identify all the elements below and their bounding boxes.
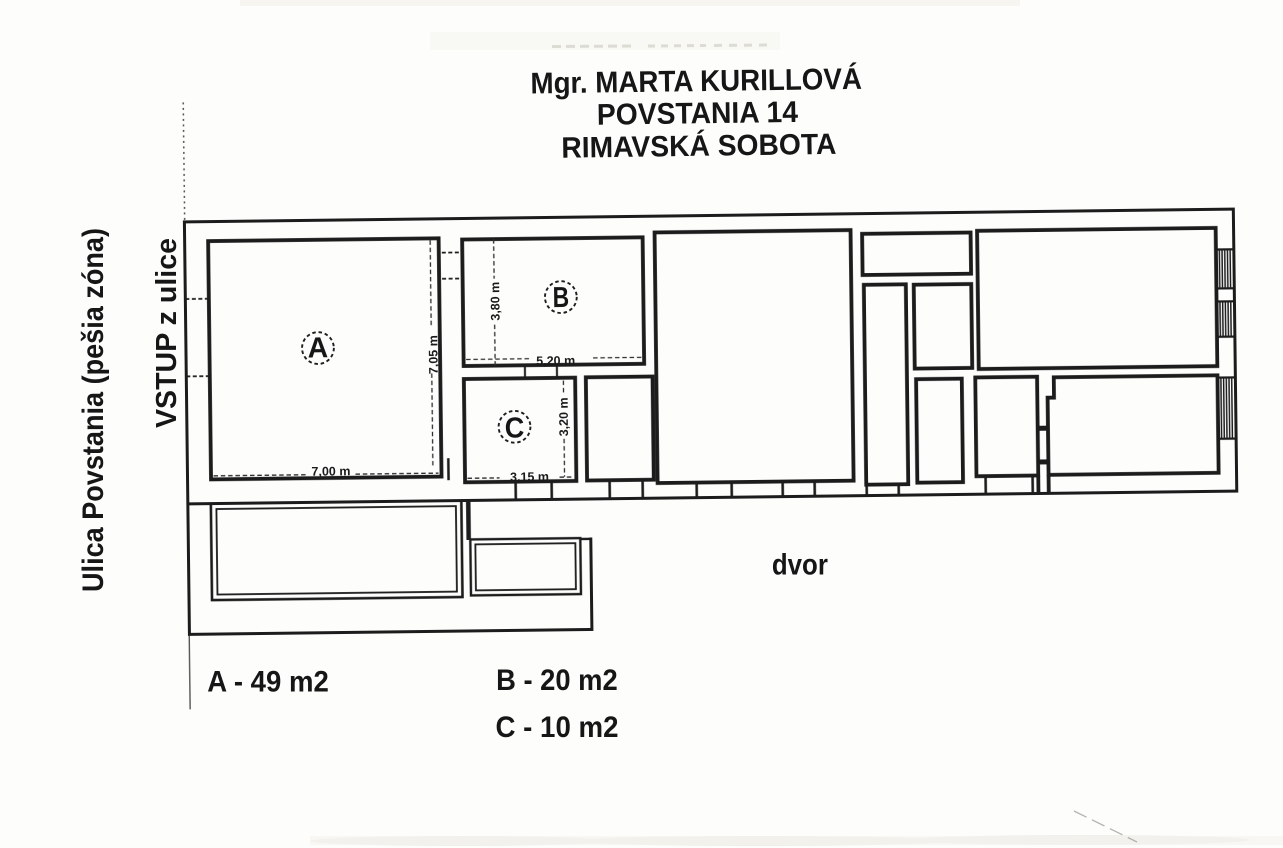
svg-text:Mgr. MARTA KURILLOVÁ: Mgr. MARTA KURILLOVÁ xyxy=(530,62,862,101)
svg-text:7,05 m: 7,05 m xyxy=(426,335,440,374)
svg-text:3,15 m: 3,15 m xyxy=(510,470,549,484)
svg-text:3,20 m: 3,20 m xyxy=(557,397,571,436)
svg-text:A: A xyxy=(308,332,329,364)
svg-text:VSTUP z ulice: VSTUP z ulice xyxy=(151,238,183,428)
svg-text:B - 20 m2: B - 20 m2 xyxy=(496,664,618,697)
svg-text:dvor: dvor xyxy=(772,549,828,582)
svg-text:B: B xyxy=(552,282,569,314)
svg-text:C - 10 m2: C - 10 m2 xyxy=(496,711,619,744)
svg-text:5,20 m: 5,20 m xyxy=(536,354,575,368)
svg-text:POVSTANIA 14: POVSTANIA 14 xyxy=(597,96,799,132)
svg-text:7,00 m: 7,00 m xyxy=(311,464,350,478)
svg-text:Ulica Povstania (pešia zóna): Ulica Povstania (pešia zóna) xyxy=(77,228,110,592)
svg-text:3,80 m: 3,80 m xyxy=(488,282,502,321)
svg-text:RIMAVSKÁ SOBOTA: RIMAVSKÁ SOBOTA xyxy=(561,127,836,165)
svg-text:C: C xyxy=(505,412,525,444)
svg-text:A - 49 m2: A - 49 m2 xyxy=(207,666,328,699)
